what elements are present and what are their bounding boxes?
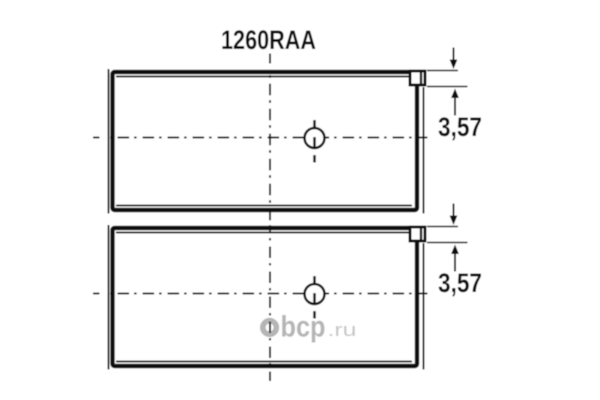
svg-text:3,57: 3,57: [438, 268, 482, 298]
svg-text:3,57: 3,57: [438, 112, 482, 142]
svg-text:bcp: bcp: [281, 310, 326, 343]
svg-text:1260RAA: 1260RAA: [221, 25, 316, 55]
svg-text:.ru: .ru: [328, 320, 357, 340]
